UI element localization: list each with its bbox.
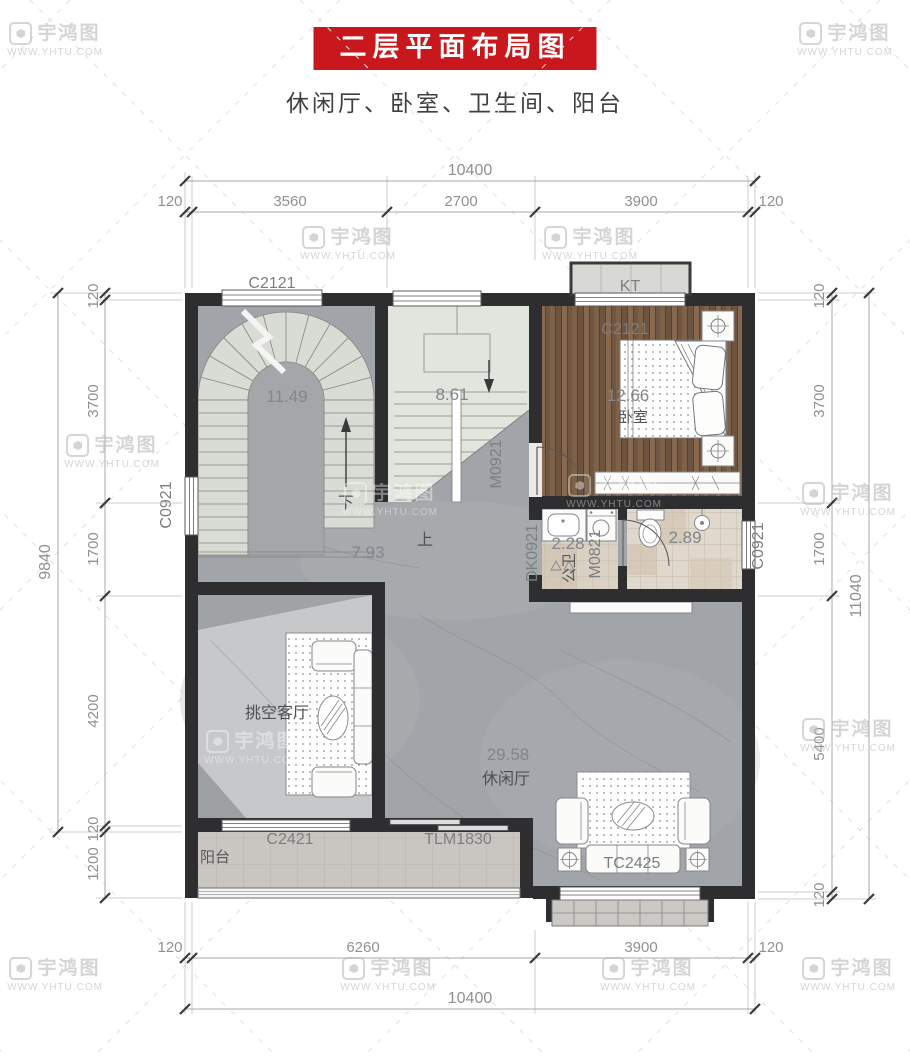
- room-area: 2.28: [551, 534, 584, 553]
- stair-up-label: 上: [417, 531, 433, 549]
- door-label: M0921: [488, 439, 505, 488]
- floor-plan-page: 二层平面布局图 休闲厅、卧室、卫生间、阳台: [0, 0, 910, 1057]
- console-table: [570, 602, 692, 613]
- pillow: [692, 345, 726, 391]
- dim-seg: 4200: [85, 694, 102, 727]
- window-label: C0921: [158, 481, 175, 528]
- window-left: [185, 477, 198, 535]
- dim-seg: 120: [85, 816, 102, 841]
- dim-total-left: 9840: [37, 544, 54, 580]
- dim-seg: 3900: [624, 193, 657, 210]
- dim-seg: 2700: [444, 193, 477, 210]
- side-table: [558, 848, 581, 871]
- room-name: 休闲厅: [482, 770, 530, 788]
- window-label: C0921: [750, 522, 767, 569]
- armchair: [312, 767, 356, 797]
- dim-seg: 120: [157, 193, 182, 210]
- dim-total-right: 11040: [848, 574, 865, 617]
- armchair: [678, 798, 710, 844]
- dim-seg: 120: [758, 939, 783, 956]
- armchair: [556, 798, 588, 844]
- opening-label: DK0921: [524, 524, 541, 582]
- side-table: [686, 848, 709, 871]
- room-area: 11.49: [266, 387, 307, 406]
- stair2-room: [388, 306, 529, 502]
- floor-plan-drawing: C2121 KT C2121 M0921 C0921 C0921 DK0921 …: [0, 0, 910, 1057]
- room-name: 挑空客厅: [245, 704, 309, 722]
- armchair: [312, 641, 356, 671]
- kt-label: KT: [620, 278, 641, 295]
- balcony-railing: [198, 888, 520, 898]
- dim-seg: 120: [811, 882, 828, 907]
- dim-seg: 1700: [85, 532, 102, 565]
- room-area: 2.89: [668, 528, 701, 547]
- window-living: [222, 820, 350, 831]
- window-top-middle: [393, 291, 481, 306]
- wardrobe: [595, 472, 740, 494]
- dim-seg: 120: [758, 193, 783, 210]
- window-label: C2121: [601, 321, 648, 338]
- dim-seg: 1700: [811, 532, 828, 565]
- nightstand: [702, 436, 734, 466]
- sofa: [354, 650, 372, 764]
- nightstand: [702, 311, 734, 341]
- dim-seg: 5400: [811, 727, 828, 760]
- stairwell-room: [198, 311, 374, 557]
- dim-seg: 120: [157, 939, 182, 956]
- room-name: 公卫: [561, 553, 578, 583]
- pillow: [692, 391, 726, 436]
- room-area: 29.58: [487, 745, 530, 764]
- dim-seg: 3560: [273, 193, 306, 210]
- room-area: 8.61: [435, 385, 468, 404]
- coffee-table: [612, 802, 654, 830]
- dim-total-top: 10400: [448, 162, 493, 179]
- window-top-left: [222, 290, 322, 306]
- dim-seg: 1200: [85, 847, 102, 880]
- dim-seg: 3700: [811, 384, 828, 417]
- door-label: TLM1830: [424, 831, 492, 848]
- stair-down-label: 下: [338, 495, 354, 512]
- room-area: 12.66: [607, 386, 650, 405]
- dim-seg: 3900: [624, 939, 657, 956]
- window-label: TC2425: [604, 855, 661, 872]
- stair2-handrail: [452, 390, 461, 502]
- room-name: 阳台: [200, 849, 230, 866]
- dim-total-bottom: 10400: [448, 990, 493, 1007]
- room-area: 7.93: [351, 543, 384, 562]
- dim-seg: 120: [811, 283, 828, 308]
- coffee-table: [318, 696, 348, 740]
- door-label: M0821: [587, 529, 604, 578]
- dim-seg: 120: [85, 283, 102, 308]
- dim-seg: 6260: [346, 939, 379, 956]
- room-name: 卧室: [618, 409, 648, 426]
- dim-seg: 3700: [85, 384, 102, 417]
- window-label: C2421: [266, 831, 313, 848]
- window-label: C2121: [248, 275, 295, 292]
- bay-window-leisure: [546, 886, 714, 926]
